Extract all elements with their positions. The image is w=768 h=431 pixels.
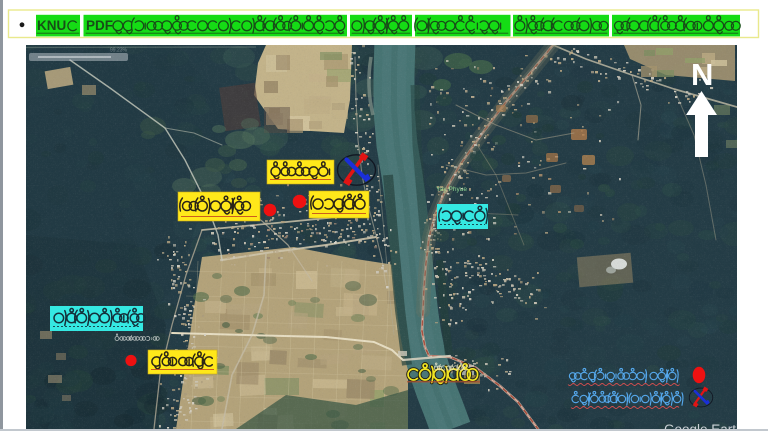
svg-text:Yay Phyue: Yay Phyue — [436, 186, 467, 193]
svg-text:N: N — [691, 57, 713, 92]
svg-text:PDF: PDF — [86, 18, 113, 33]
svg-text:KNU: KNU — [37, 18, 66, 33]
